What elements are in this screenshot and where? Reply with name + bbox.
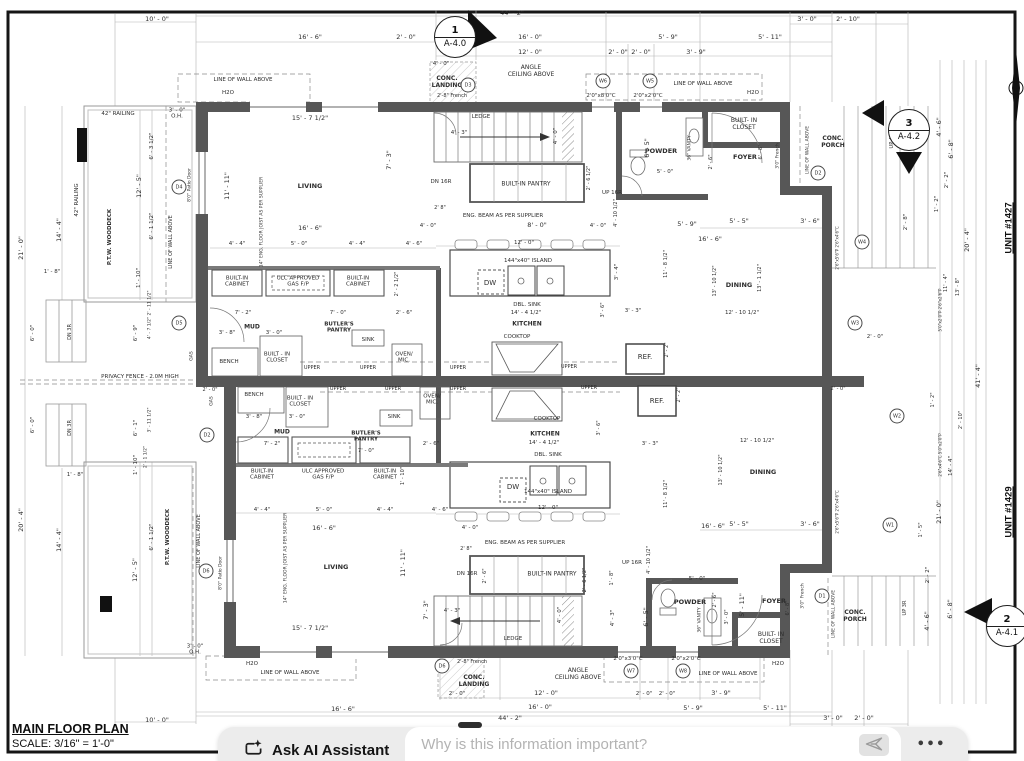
dim-label: 2' - 0": [202, 388, 217, 394]
dim-label: PRIVACY FENCE - 2.0M HIGH: [101, 374, 179, 380]
dim-label: 15' - 7 1/2": [292, 625, 328, 633]
dim-label: 44' - 2": [500, 10, 524, 18]
dim-label: 2'0"x2'0"C: [633, 93, 662, 99]
dim-label: 2'0"x8'0"C: [586, 93, 615, 99]
dim-label: 15' - 7 1/2": [292, 115, 328, 123]
dim-label: BUTLER'S PANTRY: [351, 431, 381, 444]
dim-label: SINK: [388, 414, 401, 420]
dim-label: 6' - 0": [30, 325, 36, 342]
dim-label: 7' - 2": [264, 441, 281, 447]
dim-label: 3' - 0": [725, 609, 731, 624]
drag-handle: [458, 722, 482, 728]
dim-label: H2O: [747, 90, 759, 96]
dim-label: 5' - 0": [291, 241, 308, 247]
door-marker-d3: D3: [461, 78, 476, 93]
ai-question-input[interactable]: [405, 736, 858, 761]
dim-label: 2' - 6 1/2": [583, 568, 589, 593]
unit-1427-label: UNIT #1427: [1004, 202, 1015, 253]
dim-label: 16' - 0": [528, 704, 552, 712]
dim-label: 5' - 0": [657, 169, 674, 175]
dim-label: ULC APPROVED GAS F/P: [277, 276, 320, 289]
dim-label: 11' - 4": [944, 274, 950, 292]
dim-label: CONC. LANDING: [459, 674, 490, 688]
dim-label: 3'0" French: [775, 143, 780, 168]
dim-label: 5' - 11": [739, 593, 747, 617]
dim-label: 3' - 8": [219, 330, 236, 336]
dim-label: LEDGE: [504, 636, 523, 642]
section-marker-a-4.1: 2A-4.1: [986, 605, 1024, 647]
door-marker-d1: D1: [815, 589, 830, 604]
section-number: 2: [987, 606, 1024, 627]
door-marker-d6: D6: [199, 564, 214, 579]
dim-label: 5' - 9": [658, 34, 678, 42]
dim-label: UPPER: [330, 387, 346, 393]
dim-label: LINE OF WALL ABOVE: [831, 590, 836, 638]
dim-label: 5'0"x2'0"P 2'6"x2'6"P: [939, 289, 944, 332]
dim-label: UPPER: [581, 386, 597, 392]
dim-label: 4' - 6": [924, 611, 932, 631]
dim-label: DN 16R: [431, 179, 452, 185]
dim-label: 3' - 6": [601, 302, 607, 317]
dim-label: 2'6"x4'6"C 5'0"x2'0"P: [939, 433, 944, 476]
dim-label: 5' - 9": [683, 705, 703, 713]
dim-label: 2' - 0": [396, 34, 416, 42]
dim-label: 3' - 6": [597, 420, 603, 435]
dim-label: UPPER: [360, 366, 376, 372]
ask-ai-label: Ask AI Assistant: [272, 742, 389, 759]
dim-label: 144"x40" ISLAND: [504, 258, 552, 264]
dim-label: 12' - 10 1/2": [740, 438, 774, 444]
dim-label: 4' - 10 1/2": [614, 199, 620, 227]
dim-label: 11' - 11": [400, 549, 408, 577]
dim-label: 2' - 0": [659, 691, 676, 697]
dim-label: 4' - 0": [553, 128, 559, 145]
dim-label: 2' - 6": [483, 568, 489, 583]
dim-label: 12' - 10 1/2": [725, 310, 759, 316]
dim-label: UPPER: [385, 387, 401, 393]
section-number: 1: [435, 17, 475, 38]
dim-label: COOKTOP: [504, 334, 531, 340]
dim-label: LINE OF WALL ABOVE: [674, 81, 733, 87]
dim-label: 3' - 0" O.H.: [169, 108, 186, 121]
dim-label: H2O: [772, 661, 784, 667]
dim-label: 4' - 7 1/2": [147, 317, 152, 339]
dim-label: 3' - 0": [289, 414, 306, 420]
section-sheet: A-4.1: [987, 627, 1024, 638]
dim-label: 14' - 4": [56, 218, 64, 242]
dim-label: 3' - 0": [823, 715, 843, 723]
dim-label: ENG. BEAM AS PER SUPPLIER: [485, 540, 565, 546]
room-mud-upper: MUD: [244, 323, 260, 330]
dim-label: 5' - 0": [689, 576, 706, 582]
room-powder-upper: POWDER: [645, 148, 677, 156]
section-sheet: A-4.2: [889, 131, 929, 142]
room-living-upper: LIVING: [298, 183, 323, 191]
dim-label: 3' - 0" O.H.: [187, 644, 204, 657]
room-kitchen-upper: KITCHEN: [512, 320, 542, 327]
dim-label: LINE OF WALL ABOVE: [197, 514, 203, 568]
section-number: 3: [889, 110, 929, 131]
dim-label: 6' - 8": [947, 599, 955, 619]
dim-label: H2O: [246, 661, 258, 667]
dim-label: 13' - 10 1/2": [719, 454, 725, 485]
dim-label: 2'6"x5'6"P 2'6"x4'6"C: [836, 490, 841, 533]
dim-label: BUILT-IN PANTRY: [527, 570, 576, 577]
dim-label: 16' - 0": [518, 34, 542, 42]
dim-label: 11' - 11": [224, 172, 232, 200]
dim-label: 4' - 6": [406, 241, 423, 247]
dim-label: 2'0"x3'0"C: [613, 656, 642, 662]
dim-label: 4' - 4": [349, 241, 366, 247]
dim-label: 14" ENG. FLOOR JOIST AS PER SUPPLIER: [259, 177, 264, 267]
dim-label: BUILT - IN CLOSET: [287, 396, 313, 409]
dim-label: 44' - 2": [498, 715, 522, 723]
dim-label: 6' - 8": [759, 144, 765, 159]
dim-label: 5' - 11": [758, 34, 782, 42]
send-button[interactable]: [859, 734, 889, 756]
dim-label: 2' - 10": [959, 411, 965, 429]
dim-label: 1' - 2": [934, 196, 940, 213]
dim-label: 6' - 5": [643, 607, 651, 627]
dim-label: 7' - 0": [358, 448, 375, 454]
dim-label: P.T.W. WOODDECK: [165, 509, 171, 565]
dim-label: 6' - 8": [948, 139, 956, 159]
dim-label: UPPER: [450, 387, 466, 393]
dim-label: 4' - 0": [420, 223, 437, 229]
floor-plan-page: 10' - 0"44' - 2"16' - 6"2' - 0"16' - 0"5…: [0, 0, 1024, 761]
dim-label: 2' - 2": [677, 387, 683, 402]
dim-label: DN 3R: [68, 420, 74, 436]
dim-label: 4' - 0": [462, 525, 479, 531]
dim-label: 5' - 9": [677, 221, 697, 229]
dim-label: 1' - 2": [931, 392, 937, 407]
dim-label: SINK: [362, 337, 375, 343]
dim-label: DBL. SINK: [513, 302, 540, 308]
dim-label: 6' - 1": [133, 420, 139, 437]
dim-label: 12' - 5": [136, 174, 144, 198]
dim-label: ANGLE CEILING ABOVE: [555, 667, 602, 681]
dim-label: 2' - 0": [830, 387, 845, 393]
dim-label: 14' - 4": [948, 456, 954, 476]
window-marker-w3: W3: [848, 316, 863, 331]
dim-label: 4' - 3": [610, 610, 616, 627]
dim-label: 2' - 6": [423, 441, 440, 447]
dim-label: 12' - 0": [514, 240, 534, 246]
section-marker-a-4.2: 3A-4.2: [888, 109, 930, 151]
dim-label: 2' - 0": [449, 691, 466, 697]
window-marker-w6: W6: [596, 74, 611, 89]
dim-label: 10' - 0": [145, 717, 169, 725]
dim-label: LINE OF WALL ABOVE: [805, 126, 810, 174]
dim-label: 3' - 8": [246, 414, 263, 420]
dim-label: 5' - 5": [729, 521, 749, 529]
dim-label: 2' - 8": [903, 214, 909, 231]
ai-assistant-bar: Ask AI Assistant •••: [218, 727, 968, 761]
dim-label: BUILT- IN CLOSET: [758, 631, 784, 645]
window-marker-w4: W4: [855, 235, 870, 250]
dim-label: OVEN/ MIC.: [423, 394, 440, 407]
dim-label: 4' - 4": [229, 241, 246, 247]
dim-label: 6' - 3 1/2": [149, 132, 155, 159]
dim-label: 16' - 6": [331, 706, 355, 714]
dim-label: 36" VANITY: [687, 135, 692, 160]
dim-label: 2' - 2": [944, 172, 950, 189]
dim-label: BUILT- IN CLOSET: [731, 117, 757, 131]
dim-label: CONC. PORCH: [821, 135, 845, 149]
dim-label: 6' - 8": [786, 600, 792, 615]
room-foyer-lower: FOYER: [762, 598, 786, 606]
room-powder-lower: POWDER: [674, 599, 706, 607]
room-kitchen-lower: KITCHEN: [530, 430, 560, 437]
dim-label: 3' - 0": [797, 16, 817, 24]
dim-label: 4' - 10 1/2": [647, 546, 653, 574]
dim-label: 5' - 11": [763, 705, 787, 713]
dim-label: BUILT-IN PANTRY: [501, 180, 550, 187]
dim-label: 1' - 10": [401, 467, 407, 485]
dim-label: 3' - 11 1/2": [147, 407, 152, 432]
window-marker-w7: W7: [624, 664, 639, 679]
dim-label: H2O: [222, 90, 234, 96]
dim-label: 2'0"x2'0"C: [671, 656, 700, 662]
annotation-layer: 10' - 0"44' - 2"16' - 6"2' - 0"16' - 0"5…: [0, 0, 1024, 761]
dim-label: 3' - 0": [266, 330, 283, 336]
window-marker-w5: W5: [643, 74, 658, 89]
dim-label: LINE OF WALL ABOVE: [169, 215, 175, 269]
dim-label: BUILT - IN CLOSET: [264, 352, 290, 365]
dim-label: 41' - 4": [975, 364, 983, 388]
dim-label: 42" RAILING: [74, 183, 80, 216]
dim-label: 3'0" French: [800, 583, 805, 608]
dim-label: 21' - 0": [936, 500, 944, 524]
dim-label: 2'-8" French: [457, 660, 487, 666]
window-marker-w1: W1: [883, 518, 898, 533]
ai-input-container: [405, 727, 900, 761]
dim-label: 4' - 0": [557, 607, 563, 624]
dim-label: 5' - 5": [729, 218, 749, 226]
dim-label: 21' - 0": [18, 236, 26, 260]
dim-label: GAS: [209, 396, 214, 405]
dim-label: 1' - 10": [133, 455, 139, 475]
dim-label: 4' - 6": [432, 507, 449, 513]
dim-label: 14' - 4": [56, 528, 64, 552]
dim-label: 2' - 6": [396, 310, 413, 316]
room-dining-upper: DINING: [726, 282, 752, 290]
dim-label: 2' - 0": [631, 49, 651, 57]
dim-label: REF.: [650, 397, 664, 405]
dim-label: 1' - 10": [136, 268, 142, 288]
dim-label: 4' - 3": [444, 608, 461, 614]
dim-label: 7' - 2": [235, 310, 252, 316]
dim-label: UPPER: [450, 366, 466, 372]
dim-label: 144"x40" ISLAND: [524, 489, 572, 495]
dim-label: 4' - 4": [377, 507, 394, 513]
dim-label: UPPER: [561, 365, 577, 371]
dim-label: 2' - 2": [925, 567, 931, 584]
door-marker-d5: D5: [172, 316, 187, 331]
dim-label: 4' - 4": [254, 507, 271, 513]
dim-label: 3' - 3": [625, 308, 642, 314]
dim-label: 2'-8" French: [437, 94, 467, 100]
door-marker-d2: D2: [811, 166, 826, 181]
dim-label: 6' - 9": [133, 325, 139, 342]
door-marker-d4: D4: [172, 180, 187, 195]
door-marker-d6: D6: [435, 659, 450, 674]
dim-label: BUILT-IN CABINET: [250, 469, 274, 482]
dim-label: 2' - 10": [836, 16, 860, 24]
dim-label: 2' - 0": [854, 715, 874, 723]
dim-label: 7' - 3": [386, 150, 394, 170]
dim-label: 11' - 8 1/2": [664, 250, 670, 278]
dim-label: LEDGE: [472, 114, 491, 120]
dim-label: DN 3R: [68, 324, 74, 340]
dim-label: 14" ENG. FLOOR JOIST AS PER SUPPLIER: [283, 513, 288, 603]
dim-label: 4' - 6": [936, 117, 944, 137]
dim-label: BUILT-IN CABINET: [225, 276, 249, 289]
dim-label: 12' - 0": [538, 505, 558, 511]
dim-label: 2' - 6": [713, 592, 719, 607]
dim-label: BUILT-IN CABINET: [346, 276, 370, 289]
dim-label: BUTLER'S PANTRY: [324, 322, 354, 335]
dim-label: 3' - 6": [800, 218, 820, 226]
dim-label: ENG. BEAM AS PER SUPPLIER: [463, 213, 543, 219]
dim-label: 2' - 1 1/2": [143, 446, 148, 468]
dim-label: LINE OF WALL ABOVE: [261, 670, 320, 676]
dim-label: 6' - 1 1/2": [149, 212, 155, 239]
dim-label: 2' - 6 1/2": [587, 166, 593, 191]
dim-label: 8'0" Patio Door: [218, 556, 223, 590]
dim-label: 12' - 0": [534, 690, 558, 698]
dim-label: 42" RAILING: [101, 111, 134, 117]
unit-1429-label: UNIT #1429: [1004, 486, 1015, 537]
dim-label: LINE OF WALL ABOVE: [699, 671, 758, 677]
dim-label: 16' - 6": [312, 525, 336, 533]
dim-label: ULC APPROVED GAS F/P: [302, 469, 345, 482]
room-dining-lower: DINING: [750, 469, 776, 477]
dim-label: 3' - 4": [614, 264, 620, 281]
dim-label: 1' - 8": [67, 472, 84, 478]
dim-label: LINE OF WALL ABOVE: [214, 77, 273, 83]
dim-label: 1' - 8": [610, 570, 616, 585]
dim-label: 3' - 9": [686, 49, 706, 57]
dim-label: 16' - 6": [298, 225, 322, 233]
section-marker-a-4.0: 1A-4.0: [434, 16, 476, 58]
dim-label: 5' - 0": [316, 507, 333, 513]
send-icon: [864, 736, 884, 755]
dim-label: 2' - 0": [636, 691, 653, 697]
dim-label: 7' - 0": [330, 310, 347, 316]
dim-label: 2' 8": [434, 206, 446, 212]
dim-label: 16' - 6": [698, 236, 722, 244]
dim-label: CONC. LANDING: [432, 75, 463, 89]
dim-label: 4' - 0": [590, 223, 607, 229]
dim-label: 6' - 0": [30, 417, 36, 434]
plan-scale: SCALE: 3/16" = 1'-0": [12, 738, 114, 750]
dim-label: 3' - 9": [711, 690, 731, 698]
dim-label: 20' - 4": [18, 508, 26, 532]
more-options-button[interactable]: •••: [901, 737, 968, 761]
dim-label: 2' - 0": [608, 49, 628, 57]
room-foyer-upper: FOYER: [733, 154, 757, 162]
dim-label: 14' - 4 1/2": [529, 440, 560, 446]
ai-assistant-icon: [244, 739, 263, 761]
plan-title: MAIN FLOOR PLAN: [12, 722, 129, 736]
dim-label: 36" VANITY: [697, 607, 702, 632]
dim-label: 3' - 6": [800, 521, 820, 529]
dim-label: 12' - 0": [518, 49, 542, 57]
dim-label: 2'6"x5'6"P 2'6"x4'6"C: [836, 226, 841, 269]
dim-label: 2' - 0": [867, 334, 884, 340]
dim-label: 2' - 11 1/2": [147, 290, 152, 315]
dim-label: BUILT-IN CABINET: [373, 469, 397, 482]
window-marker-w2: W2: [890, 409, 905, 424]
dim-label: 13' - 10 1/2": [713, 265, 719, 296]
door-marker-d2: D2: [200, 428, 215, 443]
dim-label: ANGLE CEILING ABOVE: [508, 64, 555, 78]
dim-label: 16' - 6": [701, 523, 725, 531]
dim-label: 2' 8": [460, 547, 472, 553]
dim-label: 16' - 6": [298, 34, 322, 42]
dim-label: UPPER: [304, 366, 320, 372]
dim-label: 2' - 6": [709, 154, 715, 169]
dim-label: 3' - 3": [642, 441, 659, 447]
dim-label: 7' - 3": [423, 600, 431, 620]
dim-label: 13' - 1 1/2": [758, 264, 764, 292]
dim-label: UP 3R: [903, 601, 909, 616]
dim-label: 8' - 0": [527, 222, 547, 230]
dim-label: 1' - 5": [919, 522, 925, 537]
dim-label: DN 16R: [457, 571, 478, 577]
dim-label: 12' - 5": [132, 558, 140, 582]
dim-label: 6' - 1 1/2": [149, 523, 155, 550]
dim-label: REF.: [638, 353, 652, 361]
dim-label: OVEN/ MIC.: [395, 352, 412, 365]
dim-label: UP 16R: [602, 190, 622, 196]
dim-label: 2' - 2 1/2": [395, 272, 401, 297]
dim-label: 1' - 8": [44, 269, 61, 275]
dim-label: 20' - 4": [964, 228, 972, 252]
dim-label: GAS: [189, 351, 194, 360]
dim-label: 2' - 2": [665, 342, 671, 357]
dim-label: 10' - 0": [145, 16, 169, 24]
dim-label: 13' - 8": [956, 278, 962, 296]
room-mud-lower: MUD: [274, 428, 290, 435]
dim-label: 11' - 8 1/2": [664, 480, 670, 508]
dim-label: COOKTOP: [534, 416, 561, 422]
dim-label: UP 16R: [622, 560, 642, 566]
dim-label: BENCH: [219, 359, 238, 365]
dim-label: DW: [484, 279, 496, 287]
dim-label: CONC. PORCH: [843, 609, 867, 623]
section-sheet: A-4.0: [435, 38, 475, 49]
dim-label: 8'0" Patio Door: [187, 168, 192, 202]
window-marker-w8: W8: [676, 664, 691, 679]
dim-label: 4' - 3": [451, 130, 468, 136]
dim-label: 14' - 4 1/2": [511, 310, 542, 316]
dim-label: DBL. SINK: [534, 452, 561, 458]
dim-label: DW: [507, 483, 519, 491]
room-living-lower: LIVING: [324, 564, 349, 572]
ask-ai-button[interactable]: Ask AI Assistant: [218, 739, 405, 761]
dim-label: BENCH: [244, 392, 263, 398]
dim-label: 4' - 0": [433, 61, 450, 67]
dim-label: P.T.W. WOODDECK: [107, 209, 113, 265]
